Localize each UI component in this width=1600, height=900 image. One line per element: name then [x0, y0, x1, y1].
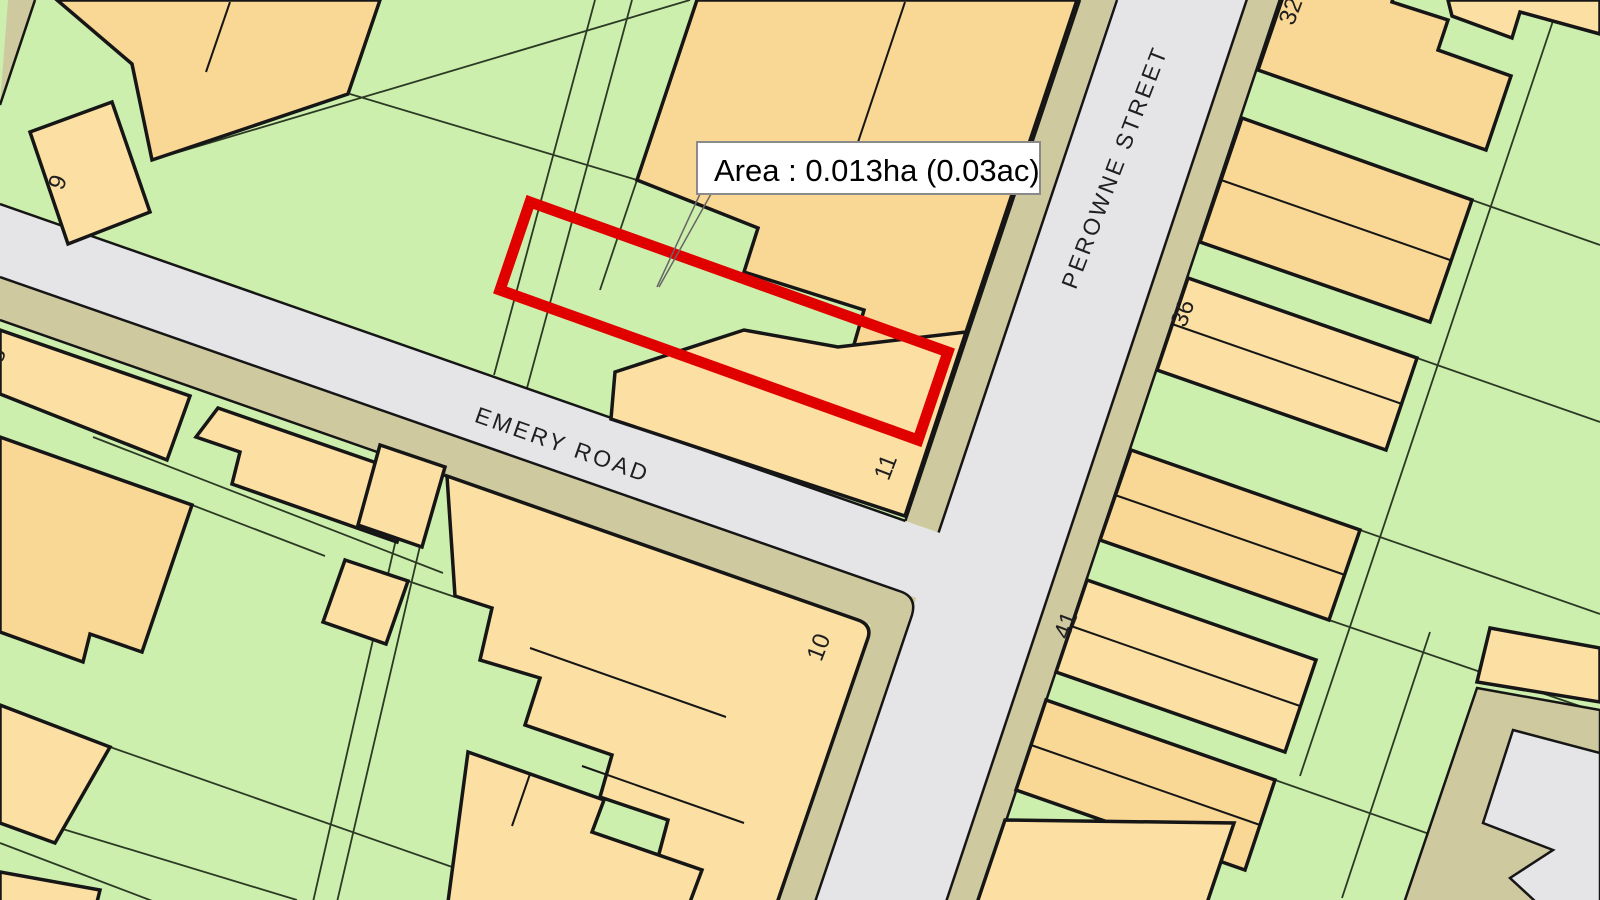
building [977, 820, 1234, 900]
annotation-area-text: Area : 0.013ha (0.03ac) [714, 153, 1040, 188]
map-viewport[interactable]: Area : 0.013ha (0.03ac) EMERY ROAD PEROW… [0, 0, 1600, 900]
map-canvas[interactable]: Area : 0.013ha (0.03ac) EMERY ROAD PEROW… [0, 0, 1600, 900]
